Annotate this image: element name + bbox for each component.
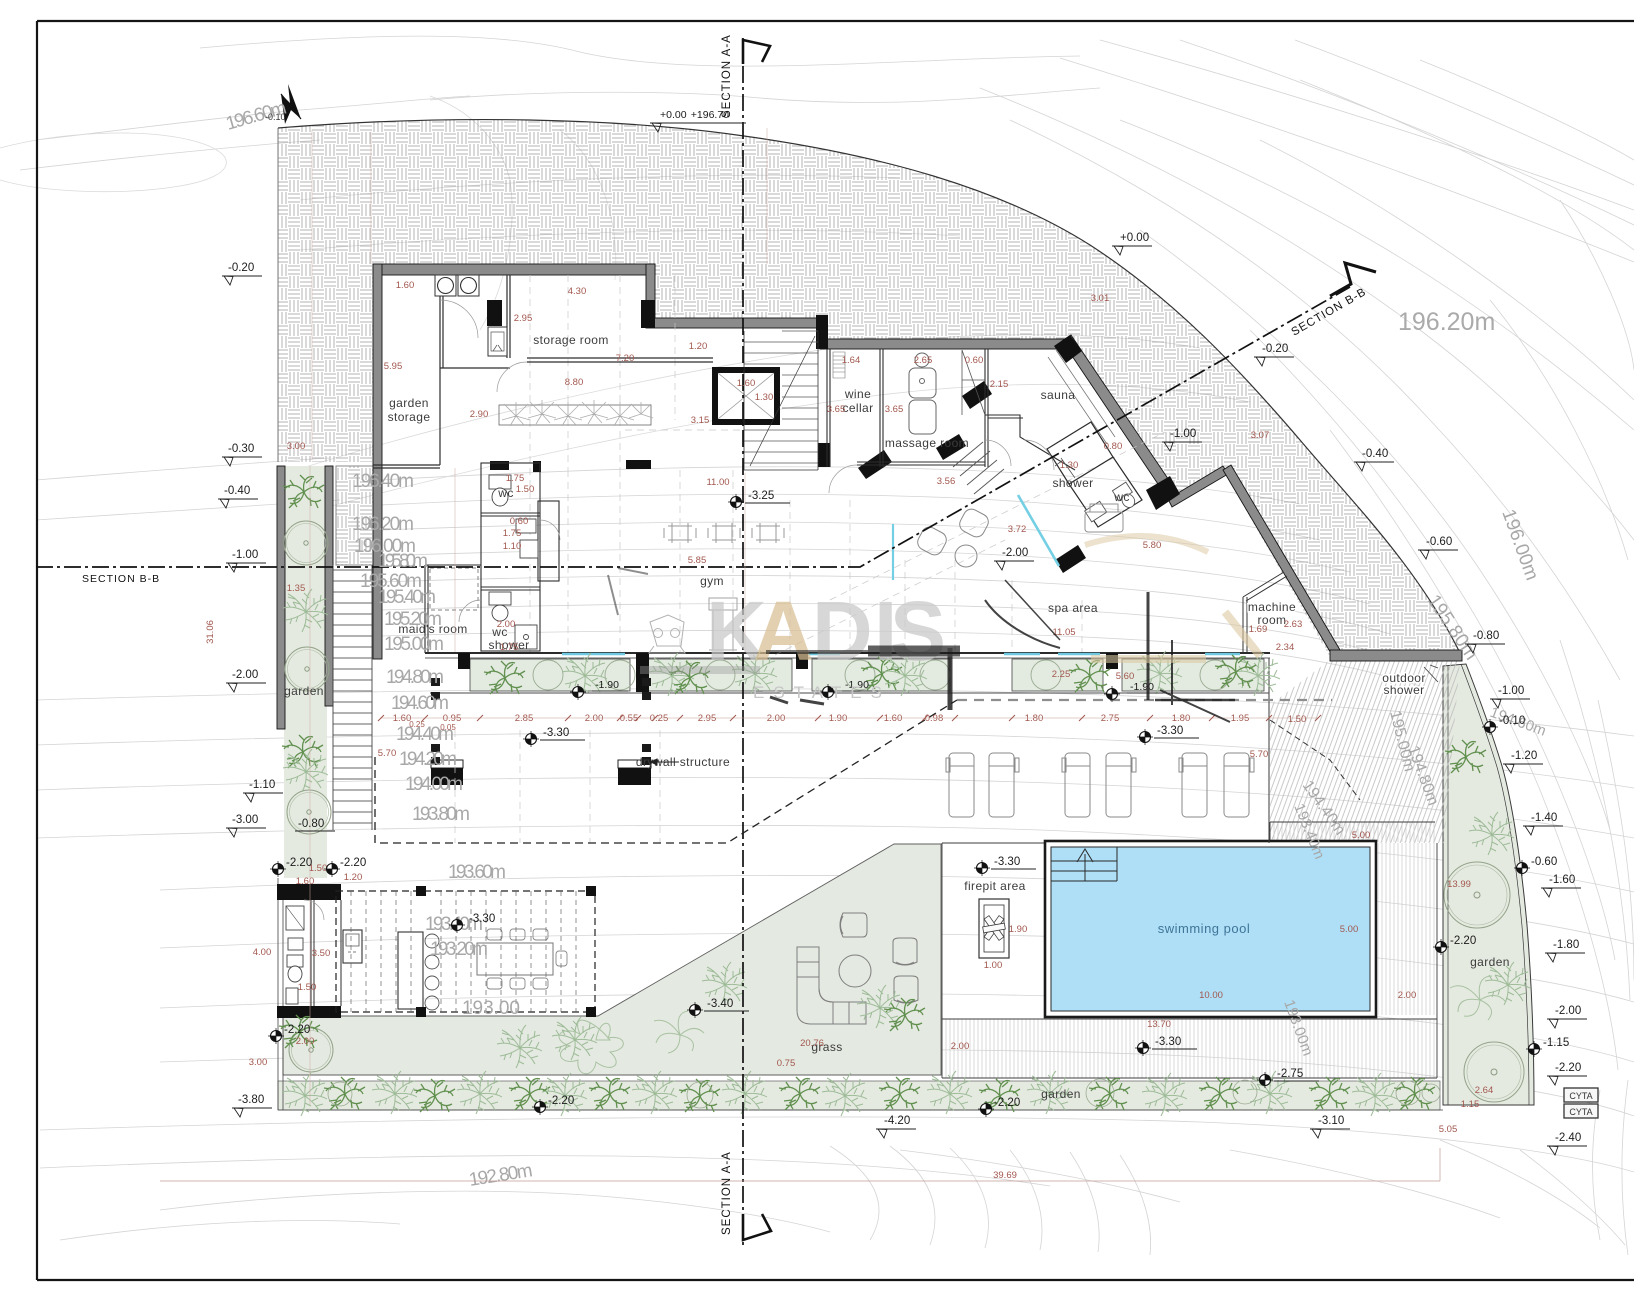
svg-text:3.65: 3.65 <box>885 404 904 415</box>
svg-text:garden: garden <box>1041 1087 1081 1101</box>
svg-text:2.85: 2.85 <box>515 713 534 724</box>
svg-text:-2.75: -2.75 <box>1277 1068 1303 1080</box>
svg-text:wc: wc <box>497 486 513 500</box>
svg-text:-0.80: -0.80 <box>1473 630 1499 642</box>
svg-text:1.30: 1.30 <box>755 392 774 403</box>
svg-text:3.50: 3.50 <box>312 948 331 959</box>
svg-text:1.20: 1.20 <box>344 872 363 883</box>
svg-text:-0.40: -0.40 <box>1362 448 1388 460</box>
svg-text:196.20m: 196.20m <box>352 514 414 535</box>
svg-text:13.99: 13.99 <box>1447 879 1471 890</box>
svg-text:1.30: 1.30 <box>1060 460 1079 471</box>
svg-text:2.15: 2.15 <box>990 379 1009 390</box>
svg-text:-4.20: -4.20 <box>884 1115 910 1127</box>
svg-text:2.90: 2.90 <box>470 409 489 420</box>
svg-text:8.80: 8.80 <box>565 377 584 388</box>
svg-text:0.05: 0.05 <box>440 723 456 732</box>
svg-text:1.50: 1.50 <box>516 484 535 495</box>
svg-text:1.35: 1.35 <box>287 583 306 594</box>
svg-text:3.72: 3.72 <box>1008 524 1027 535</box>
svg-text:-2.20: -2.20 <box>286 857 312 869</box>
svg-text:3.07: 3.07 <box>1251 430 1270 441</box>
svg-text:13.70: 13.70 <box>1147 1019 1171 1030</box>
svg-text:-1.10: -1.10 <box>249 779 275 791</box>
svg-text:-3.40: -3.40 <box>707 998 733 1010</box>
svg-text:2.00: 2.00 <box>296 1036 315 1047</box>
svg-text:sauna: sauna <box>1041 388 1076 402</box>
svg-text:firepit area: firepit area <box>964 879 1026 893</box>
svg-text:-2.20: -2.20 <box>548 1095 574 1107</box>
svg-text:1.95: 1.95 <box>1231 713 1250 724</box>
svg-text:-1.00: -1.00 <box>1498 685 1524 697</box>
svg-text:-3.80: -3.80 <box>238 1094 264 1106</box>
svg-text:1.75: 1.75 <box>506 473 525 484</box>
svg-text:4.00: 4.00 <box>253 947 272 958</box>
svg-text:196.40m: 196.40m <box>352 471 414 492</box>
svg-text:1.80: 1.80 <box>1025 713 1044 724</box>
svg-text:-3.30: -3.30 <box>1157 725 1183 737</box>
svg-text:-3.25: -3.25 <box>748 490 774 502</box>
svg-text:-2.00: -2.00 <box>232 669 258 681</box>
svg-text:0.60: 0.60 <box>965 355 984 366</box>
svg-text:5.00: 5.00 <box>1352 830 1371 841</box>
svg-text:2.63: 2.63 <box>1284 619 1303 630</box>
svg-text:2.65: 2.65 <box>914 355 933 366</box>
svg-text:0.98: 0.98 <box>925 713 944 724</box>
svg-text:193.80m: 193.80m <box>412 804 470 825</box>
svg-text:3.15: 3.15 <box>691 415 710 426</box>
svg-text:20.76: 20.76 <box>800 1038 824 1049</box>
svg-text:-0.80: -0.80 <box>298 818 324 830</box>
svg-text:0.60: 0.60 <box>510 516 529 527</box>
svg-text:0.75: 0.75 <box>777 1058 796 1069</box>
svg-text:-1.15: -1.15 <box>1543 1037 1569 1049</box>
svg-text:1.60: 1.60 <box>396 280 415 291</box>
svg-text:-1.00: -1.00 <box>1170 428 1196 440</box>
svg-text:2.00: 2.00 <box>767 713 786 724</box>
svg-text:-2.00: -2.00 <box>1002 547 1028 559</box>
svg-text:195.00m: 195.00m <box>384 634 444 655</box>
svg-text:1.00: 1.00 <box>984 960 1003 971</box>
svg-text:D: D <box>812 584 873 678</box>
svg-text:-3.30: -3.30 <box>994 856 1020 868</box>
svg-text:5.00: 5.00 <box>1340 924 1359 935</box>
svg-text:31.06: 31.06 <box>205 620 216 644</box>
svg-text:-0.30: -0.30 <box>228 443 254 455</box>
svg-text:-3.30: -3.30 <box>543 727 569 739</box>
svg-text:193.60m: 193.60m <box>448 862 506 883</box>
svg-text:garden: garden <box>284 684 324 698</box>
svg-text:0.80: 0.80 <box>1104 441 1123 452</box>
svg-text:wc: wc <box>1113 490 1129 504</box>
svg-text:1.75: 1.75 <box>503 528 522 539</box>
svg-text:wine: wine <box>844 387 871 401</box>
svg-text:2.00: 2.00 <box>497 619 516 630</box>
svg-text:0.25: 0.25 <box>650 713 669 724</box>
svg-text:1.64: 1.64 <box>842 355 861 366</box>
svg-text:CYTA: CYTA <box>1569 1107 1592 1117</box>
svg-text:4.30: 4.30 <box>568 286 587 297</box>
svg-text:194.20m: 194.20m <box>399 749 457 770</box>
svg-text:shower: shower <box>1052 476 1093 490</box>
svg-text:-0.20: -0.20 <box>1262 343 1288 355</box>
svg-text:10.00: 10.00 <box>1199 990 1223 1001</box>
svg-text:1.50: 1.50 <box>1288 714 1307 725</box>
svg-text:1.90: 1.90 <box>1009 924 1028 935</box>
svg-text:garden: garden <box>1470 955 1510 969</box>
svg-text:5.85: 5.85 <box>688 555 707 566</box>
svg-text:1.15: 1.15 <box>1461 1099 1480 1110</box>
svg-text:1.60: 1.60 <box>884 713 903 724</box>
svg-text:3.01: 3.01 <box>1091 293 1110 304</box>
svg-text:+0.00 +196.70: +0.00 +196.70 <box>660 109 729 121</box>
svg-text:-1.90: -1.90 <box>595 679 619 691</box>
svg-text:-1.00: -1.00 <box>232 549 258 561</box>
svg-text:2.34: 2.34 <box>1276 642 1295 653</box>
svg-text:-2.20: -2.20 <box>340 857 366 869</box>
svg-text:shower: shower <box>1383 683 1424 697</box>
svg-text:-2.20: -2.20 <box>1450 935 1476 947</box>
svg-text:-2.20: -2.20 <box>284 1024 310 1036</box>
svg-text:5.95: 5.95 <box>384 361 403 372</box>
svg-text:39.69: 39.69 <box>993 1170 1017 1181</box>
svg-text:3.00: 3.00 <box>249 1057 268 1068</box>
svg-text:5.70: 5.70 <box>1250 749 1269 760</box>
svg-text:2.75: 2.75 <box>1101 713 1120 724</box>
svg-text:1.69: 1.69 <box>1249 624 1268 635</box>
svg-text:massage room: massage room <box>885 436 969 450</box>
svg-text:A: A <box>753 584 814 678</box>
svg-text:1.90: 1.90 <box>829 713 848 724</box>
svg-text:-3.00: -3.00 <box>232 814 258 826</box>
svg-text:-2.40: -2.40 <box>1555 1132 1581 1144</box>
svg-text:195.40m: 195.40m <box>378 587 436 608</box>
svg-text:2.00: 2.00 <box>951 1041 970 1052</box>
svg-text:cellar: cellar <box>842 401 873 415</box>
svg-text:-0.60: -0.60 <box>1531 856 1557 868</box>
svg-text:1.20: 1.20 <box>689 341 708 352</box>
svg-text:spa area: spa area <box>1048 601 1098 615</box>
svg-text:1.50: 1.50 <box>298 982 317 993</box>
svg-text:-2.20: -2.20 <box>994 1097 1020 1109</box>
svg-text:-1.40: -1.40 <box>1531 812 1557 824</box>
svg-text:11.00: 11.00 <box>706 477 729 488</box>
svg-text:0.25: 0.25 <box>409 720 425 729</box>
svg-text:193.20m: 193.20m <box>430 939 488 960</box>
svg-text:-0.10: -0.10 <box>265 112 286 122</box>
svg-text:-3.30: -3.30 <box>1155 1036 1181 1048</box>
svg-text:CYTA: CYTA <box>1569 1091 1592 1101</box>
svg-text:1.80: 1.80 <box>1172 713 1191 724</box>
svg-text:2.00: 2.00 <box>585 713 604 724</box>
svg-text:7.20: 7.20 <box>616 353 635 364</box>
svg-text:-1.20: -1.20 <box>1511 750 1537 762</box>
svg-text:195.80m: 195.80m <box>378 551 428 572</box>
svg-text:0.55: 0.55 <box>620 713 639 724</box>
svg-text:2.25: 2.25 <box>1052 669 1071 680</box>
svg-text:5.05: 5.05 <box>1439 1124 1458 1135</box>
svg-text:1.60: 1.60 <box>737 378 756 389</box>
svg-text:2.95: 2.95 <box>698 713 717 724</box>
svg-text:-2.00: -2.00 <box>1555 1005 1581 1017</box>
svg-text:3.00: 3.00 <box>287 441 306 452</box>
svg-text:5.70: 5.70 <box>378 748 397 759</box>
svg-text:+0.00: +0.00 <box>1120 232 1149 244</box>
svg-text:SECTION A-A: SECTION A-A <box>721 1151 733 1235</box>
svg-text:194.60m: 194.60m <box>391 693 449 714</box>
svg-text:garden: garden <box>389 396 429 410</box>
svg-text:SECTION A-A: SECTION A-A <box>721 34 733 118</box>
svg-text:194.00m: 194.00m <box>405 774 463 795</box>
svg-text:-1.60: -1.60 <box>1549 874 1575 886</box>
svg-text:SECTION B-B: SECTION B-B <box>82 573 160 585</box>
svg-text:swimming pool: swimming pool <box>1158 921 1250 936</box>
svg-text:194.80m: 194.80m <box>386 667 444 688</box>
svg-text:193.00: 193.00 <box>462 998 520 1019</box>
svg-text:storage: storage <box>388 410 431 424</box>
svg-text:5.80: 5.80 <box>1143 540 1162 551</box>
svg-text:2.64: 2.64 <box>1475 1085 1494 1096</box>
svg-text:S: S <box>890 584 946 678</box>
svg-text:3.65: 3.65 <box>827 404 846 415</box>
svg-text:196.20m: 196.20m <box>1398 308 1495 336</box>
svg-text:-0.20: -0.20 <box>228 262 254 274</box>
svg-text:-0.10: -0.10 <box>1499 715 1525 727</box>
svg-text:195.20m: 195.20m <box>384 609 442 630</box>
svg-text:2.95: 2.95 <box>514 313 533 324</box>
svg-text:storage room: storage room <box>533 333 609 347</box>
svg-text:1.75: 1.75 <box>500 642 519 653</box>
svg-text:machine: machine <box>1248 600 1296 614</box>
svg-text:-3.30: -3.30 <box>469 913 495 925</box>
svg-text:3.56: 3.56 <box>937 476 956 487</box>
svg-text:-1.90: -1.90 <box>1130 681 1154 693</box>
svg-text:-2.20: -2.20 <box>1555 1062 1581 1074</box>
svg-text:1.60: 1.60 <box>296 876 315 887</box>
svg-text:-1.80: -1.80 <box>1553 939 1579 951</box>
svg-text:2.00: 2.00 <box>1398 990 1417 1001</box>
svg-text:1.10: 1.10 <box>503 541 522 552</box>
svg-text:-0.40: -0.40 <box>224 485 250 497</box>
svg-text:-3.10: -3.10 <box>1318 1115 1344 1127</box>
svg-text:-0.60: -0.60 <box>1426 536 1452 548</box>
